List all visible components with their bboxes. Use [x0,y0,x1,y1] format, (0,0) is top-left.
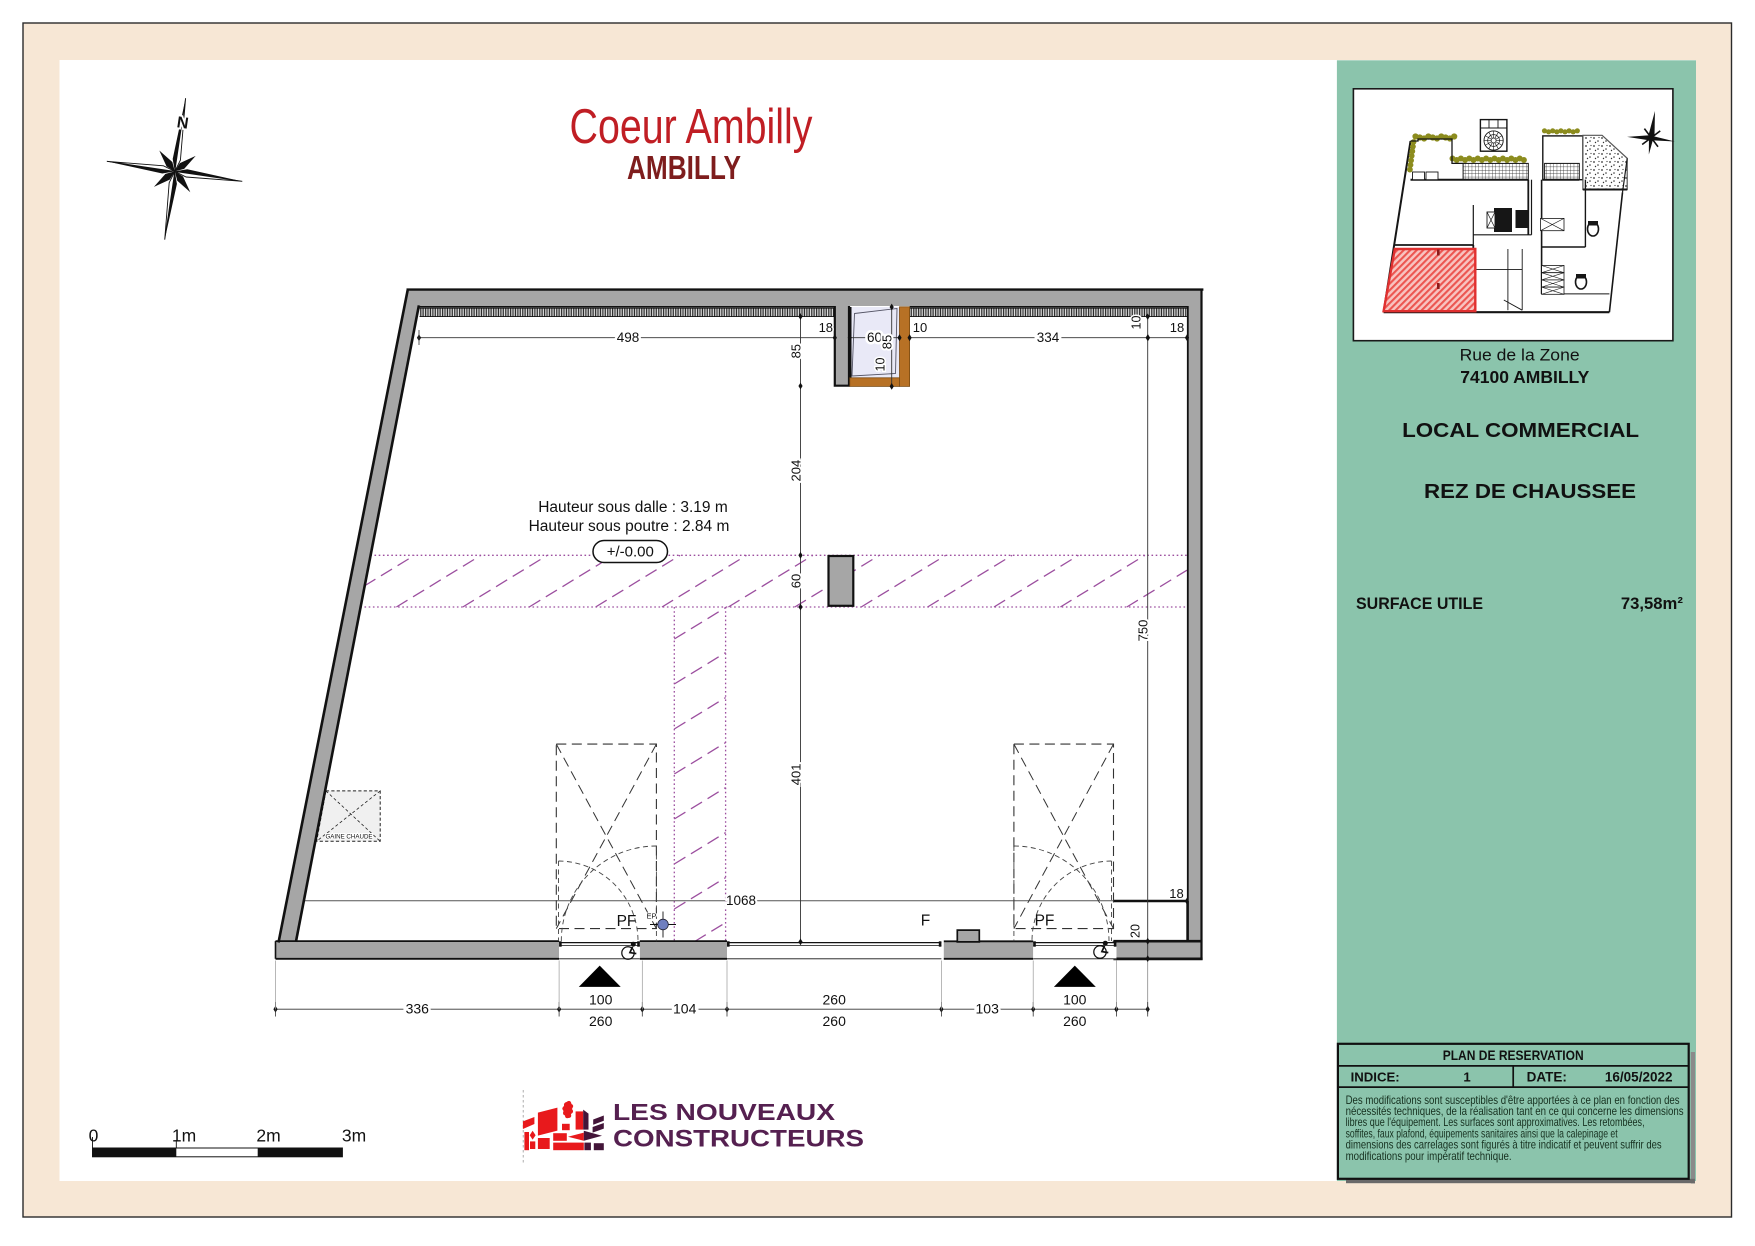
svg-text:104: 104 [673,1001,697,1017]
svg-text:103: 103 [976,1001,1000,1017]
svg-text:73,58m²: 73,58m² [1621,594,1683,613]
svg-text:PLAN DE RESERVATION: PLAN DE RESERVATION [1443,1048,1584,1063]
svg-text:PF: PF [617,913,637,930]
svg-text:18: 18 [1170,320,1184,335]
svg-text:CONSTRUCTEURS: CONSTRUCTEURS [613,1126,864,1153]
svg-text:10: 10 [874,358,888,372]
svg-text:85: 85 [789,344,804,358]
svg-text:1: 1 [1463,1070,1470,1085]
svg-text:GAINE CHAUDE: GAINE CHAUDE [325,834,372,841]
svg-text:INDICE:: INDICE: [1351,1070,1400,1085]
svg-text:18: 18 [1169,886,1183,901]
svg-text:334: 334 [1037,330,1060,345]
svg-text:204: 204 [789,460,804,482]
svg-text:Rue de la Zone: Rue de la Zone [1460,346,1580,365]
svg-text:EP: EP [646,912,656,921]
svg-text:SURFACE UTILE: SURFACE UTILE [1356,594,1483,613]
svg-text:AMBILLY: AMBILLY [627,149,741,186]
svg-text:336: 336 [406,1001,430,1017]
svg-text:Hauteur sous poutre : 2.84 m: Hauteur sous poutre : 2.84 m [529,518,730,535]
svg-text:750: 750 [1136,620,1151,642]
svg-text:85: 85 [880,335,895,349]
svg-text:+/-0.00: +/-0.00 [607,544,654,561]
svg-text:Hauteur sous dalle : 3.19 m: Hauteur sous dalle : 3.19 m [538,499,728,516]
svg-text:60: 60 [789,574,804,588]
svg-text:10: 10 [913,320,927,335]
svg-text:100: 100 [1063,992,1087,1008]
svg-text:1068: 1068 [726,893,756,908]
svg-text:10: 10 [1130,316,1144,330]
svg-text:100: 100 [589,992,613,1008]
svg-text:260: 260 [823,1013,847,1029]
svg-text:F: F [921,913,930,930]
svg-text:401: 401 [789,764,804,786]
svg-text:18: 18 [819,320,833,335]
svg-text:16/05/2022: 16/05/2022 [1605,1070,1673,1085]
svg-text:Coeur Ambilly: Coeur Ambilly [570,100,813,154]
svg-text:LES NOUVEAUX: LES NOUVEAUX [613,1099,835,1125]
svg-text:N: N [176,114,190,133]
svg-text:modifications pour impératif t: modifications pour impératif technique. [1346,1150,1512,1163]
svg-text:LOCAL COMMERCIAL: LOCAL COMMERCIAL [1402,420,1639,442]
svg-text:260: 260 [589,1013,613,1029]
svg-text:2m: 2m [256,1126,280,1146]
svg-text:1m: 1m [172,1126,196,1146]
svg-text:74100 AMBILLY: 74100 AMBILLY [1460,367,1589,387]
svg-text:0: 0 [89,1126,99,1146]
svg-text:20: 20 [1129,924,1143,938]
svg-text:PF: PF [1035,913,1055,930]
svg-text:260: 260 [1063,1013,1087,1029]
svg-text:498: 498 [617,330,640,345]
svg-text:REZ DE CHAUSSEE: REZ DE CHAUSSEE [1424,481,1636,503]
svg-text:260: 260 [823,992,847,1008]
svg-text:3m: 3m [342,1126,366,1146]
svg-text:DATE:: DATE: [1527,1070,1567,1085]
